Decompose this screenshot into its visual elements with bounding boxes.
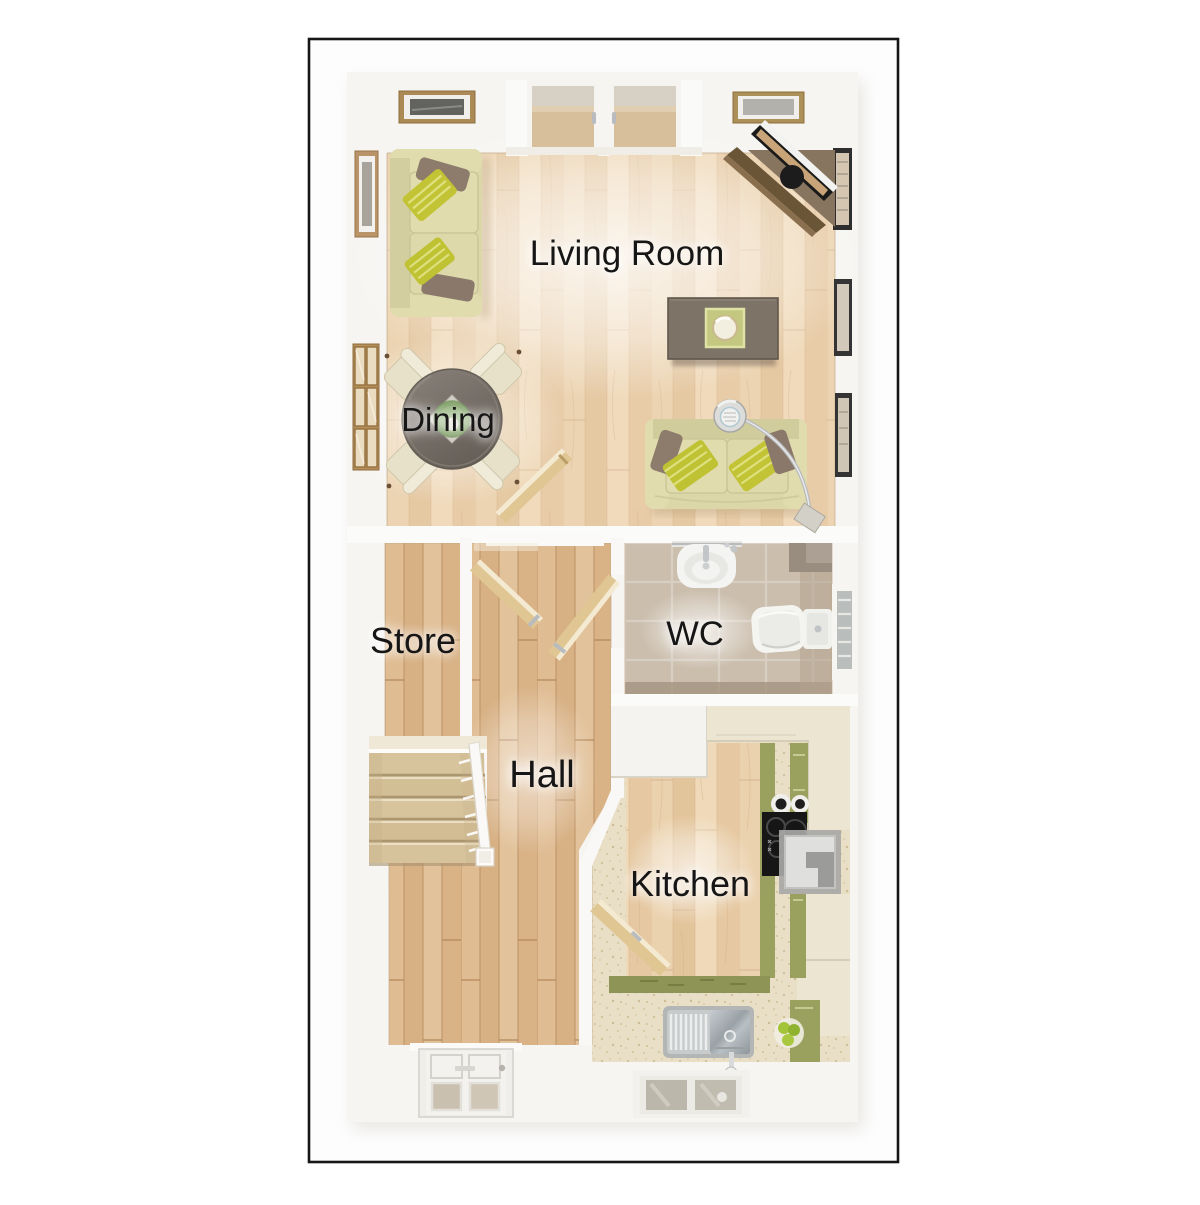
svg-text:Hall: Hall (509, 754, 574, 796)
svg-text:Kitchen: Kitchen (630, 863, 750, 904)
svg-text:Living Room: Living Room (530, 234, 725, 273)
svg-text:Dining: Dining (401, 401, 495, 438)
svg-text:WC: WC (666, 615, 723, 653)
svg-text:Store: Store (370, 620, 456, 661)
